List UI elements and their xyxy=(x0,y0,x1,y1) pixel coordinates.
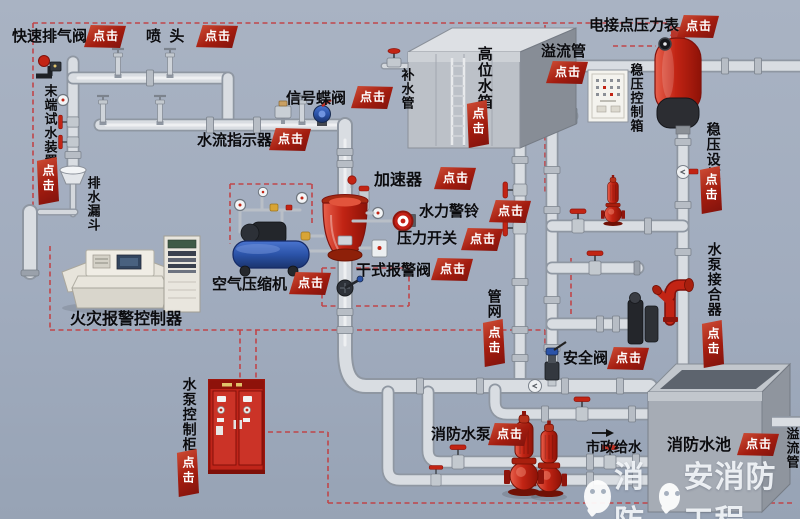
quick-exhaust-valve-icon[interactable] xyxy=(36,56,61,77)
label-pump-adapter: 水泵接合器 xyxy=(706,242,722,317)
label-air-compressor: 空气压缩机 xyxy=(212,277,287,294)
click-badge-pipe-network[interactable]: 点击 xyxy=(482,319,505,367)
label-fire-pump: 消防水泵 xyxy=(431,427,491,444)
label-pressure-control-box: 稳压控制箱 xyxy=(628,63,643,133)
click-badge-text: 点击 xyxy=(555,65,581,79)
click-badge-text: 点击 xyxy=(443,171,469,185)
click-badge-quick-exhaust-valve[interactable]: 点击 xyxy=(84,25,126,48)
click-badge-air-compressor[interactable]: 点击 xyxy=(289,272,331,295)
label-drain-funnel: 排水漏斗 xyxy=(85,176,100,232)
click-badge-pump-adapter[interactable]: 点击 xyxy=(701,320,724,368)
watermark: 消防 安消防工程 xyxy=(584,452,800,519)
label-pipe-network: 管网 xyxy=(486,289,502,319)
label-safety-valve: 安全阀 xyxy=(563,351,608,368)
click-badge-text: 点击 xyxy=(616,351,642,365)
click-badge-text: 点击 xyxy=(497,427,523,441)
click-badge-text: 点击 xyxy=(470,232,496,246)
label-makeup-water-pipe: 补水管 xyxy=(399,68,414,110)
click-badge-text: 点击 xyxy=(298,276,324,290)
label-high-level-tank: 高位水箱 xyxy=(475,46,492,110)
pressure-control-box-icon xyxy=(588,70,628,122)
label-dry-alarm-valve: 干式报警阀 xyxy=(356,263,431,280)
stabilizing-pump-icon xyxy=(601,175,625,226)
click-badge-hydraulic-alarm-bell[interactable]: 点击 xyxy=(489,200,531,223)
sprinkler-branch-pipes xyxy=(58,49,346,172)
click-badge-text: 点击 xyxy=(488,326,500,356)
click-badge-text: 点击 xyxy=(182,456,194,486)
click-badge-text: 点击 xyxy=(705,173,717,203)
click-badge-text: 点击 xyxy=(686,19,712,33)
pressure-switch-icon[interactable] xyxy=(360,240,387,257)
label-pressure-switch: 压力开关 xyxy=(397,231,457,248)
click-badge-text: 点击 xyxy=(360,90,386,104)
click-badge-end-test-device[interactable]: 点击 xyxy=(36,157,59,205)
label-end-test-device: 末端试水装置 xyxy=(42,84,57,168)
click-badge-pump-control-cabinet[interactable]: 点击 xyxy=(176,449,199,497)
municipal-supply-arrow-icon xyxy=(592,429,614,437)
label-electric-contact-pressure-gauge: 电接点压力表 xyxy=(589,18,679,35)
wechat-icon xyxy=(584,480,611,513)
watermark-text: 消防 xyxy=(614,452,661,519)
click-badge-high-level-tank[interactable]: 点击 xyxy=(466,100,489,148)
electric-contact-pressure-gauge-icon[interactable] xyxy=(659,38,671,50)
label-accelerator: 加速器 xyxy=(374,172,422,190)
click-badge-text: 点击 xyxy=(205,29,231,43)
click-badge-text: 点击 xyxy=(42,164,54,194)
label-sprinkler-head: 喷 头 xyxy=(146,29,184,46)
click-badge-pressure-switch[interactable]: 点击 xyxy=(461,228,503,251)
click-badge-overflow-pipe-top[interactable]: 点击 xyxy=(546,61,588,84)
click-badge-signal-butterfly-valve[interactable]: 点击 xyxy=(351,86,393,109)
click-badge-pressure-stabilizing-facility[interactable]: 点击 xyxy=(699,166,722,214)
label-water-flow-indicator: 水流指示器 xyxy=(197,133,272,150)
click-badge-text: 点击 xyxy=(93,29,119,43)
click-badge-accelerator[interactable]: 点击 xyxy=(434,167,476,190)
click-badge-electric-contact-pressure-gauge[interactable]: 点击 xyxy=(677,15,719,38)
pump-control-cabinet-icon[interactable] xyxy=(208,379,265,474)
fire-alarm-controller-console xyxy=(62,250,178,314)
wechat-icon xyxy=(659,483,681,510)
label-overflow-pipe-top: 溢流管 xyxy=(541,44,586,61)
click-badge-text: 点击 xyxy=(707,327,719,357)
alarm-cabinet xyxy=(164,236,200,312)
click-badge-text: 点击 xyxy=(472,107,484,137)
label-quick-exhaust-valve: 快速排气阀 xyxy=(12,29,87,46)
click-badge-sprinkler-head[interactable]: 点击 xyxy=(196,25,238,48)
click-badge-safety-valve[interactable]: 点击 xyxy=(607,347,649,370)
click-badge-text: 点击 xyxy=(440,262,466,276)
system-diagram-stage: 消防 安消防工程 快速排气阀点击喷 头点击末端试水装置点击排水漏斗信号蝶阀点击水… xyxy=(0,0,800,519)
click-badge-text: 点击 xyxy=(278,132,304,146)
label-fire-alarm-controller: 火灾报警控制器 xyxy=(70,311,182,329)
watermark-text: 安消防工程 xyxy=(683,452,800,519)
label-pump-control-cabinet: 水泵控制柜 xyxy=(181,377,197,452)
click-badge-fire-pump[interactable]: 点击 xyxy=(488,423,530,446)
click-badge-text: 点击 xyxy=(746,437,772,451)
makeup-valve-icon xyxy=(387,49,401,68)
click-badge-dry-alarm-valve[interactable]: 点击 xyxy=(431,258,473,281)
click-badge-water-flow-indicator[interactable]: 点击 xyxy=(269,128,311,151)
click-badge-text: 点击 xyxy=(498,204,524,218)
label-hydraulic-alarm-bell: 水力警铃 xyxy=(419,204,479,221)
label-signal-butterfly-valve: 信号蝶阀 xyxy=(286,91,346,108)
